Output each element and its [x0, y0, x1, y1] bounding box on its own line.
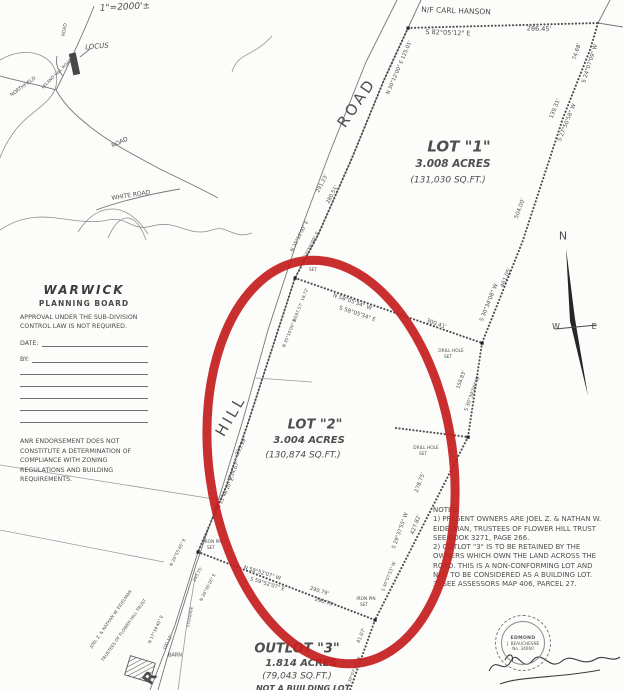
dist-north-line: 286.45' [527, 25, 552, 32]
dist-east-1: 504.00' [515, 198, 527, 219]
dist-ne-1: 74.68' [573, 43, 584, 61]
bearing-outlot-1: N 20°55'45" E [170, 538, 188, 567]
bearing-outlot-3: N 17°34'40" E [149, 615, 166, 644]
drill-hole-2-label: DRILL HOLE [413, 447, 438, 451]
by-blank-line [32, 355, 148, 363]
note-line: OWNERS WHICH OWN THE LAND ACROSS THE [433, 552, 623, 561]
road-name: ROAD [335, 76, 379, 131]
planning-board-date-row: DATE: [20, 339, 148, 347]
dist-wall-1: 291.23' [316, 174, 330, 194]
barn-label: BARN [168, 654, 182, 659]
bearing-wall-2: N 33°59'00" E [302, 232, 322, 264]
iron-pin-2-set: SET [207, 547, 215, 551]
dist-road-4: 255.99' [236, 437, 249, 457]
abutter-north: N/F CARL HANSON [421, 6, 491, 16]
planning-board-title: WARWICK [20, 283, 148, 297]
bearing-ne-2: S 27°50'58" W [558, 103, 578, 142]
planning-board-approval-text: APPROVAL UNDER THE SUB-DIVISION CONTROL … [20, 313, 148, 331]
note-line: 1) PRESENT OWNERS ARE JOEL Z. & NATHAN W… [433, 515, 623, 524]
seal-number: No. 34660 [512, 646, 534, 651]
compass-e: E [591, 323, 596, 331]
outlot3-title: OUTLOT "3" [254, 643, 339, 656]
note-line: ROAD. THIS IS A NON-CONFORMING LOT AND [433, 562, 623, 571]
scale-note: 1"=2000'± [100, 2, 151, 14]
lot2-sqft: (130,874 SQ.FT.) [265, 452, 340, 461]
dist-div: 300.41' [425, 319, 446, 331]
locus-road-mid: ROAD [111, 136, 129, 149]
note-line: NOTES: [433, 506, 623, 515]
iron-pin-1-label: IRON PIN [306, 263, 325, 267]
bearing-se-2: S 30°07'53" W [382, 562, 398, 593]
dist-bot-1: 290.79' [309, 587, 329, 598]
iron-pin-1-set: SET [309, 269, 317, 273]
locus-northfield: NORTHFIELD [10, 77, 37, 99]
stockade-label: STOCKADE [186, 606, 194, 627]
iron-pin-2-label: IRON PIN [203, 541, 222, 545]
lot2-acres: 3.004 ACRES [273, 436, 345, 446]
dist-outlot-2: 100.12' [164, 635, 175, 652]
bearing-se-1: S 29°37'55" W [392, 512, 410, 549]
dist-se-1: 278.75' [415, 472, 427, 493]
signature-blank-line [20, 363, 148, 375]
planning-board-by-row: BY: [20, 355, 148, 363]
bearing-east-1: S 30°34'08" W [480, 283, 500, 322]
signature-blank-line [20, 387, 148, 399]
dist-bot-2: 290.79' [314, 598, 334, 609]
compass-w: W [552, 323, 560, 331]
signature-blank-line [20, 411, 148, 423]
note-line: NOT TO BE CONSIDERED AS A BUILDING LOT. [433, 571, 623, 580]
dist-se-3: 41.07' [357, 628, 368, 644]
note-line: EIDELMAN, TRUSTEES OF FLOWER HILL TRUST [433, 525, 623, 534]
outlot3-sqft: (79,043 SQ.FT.) [262, 673, 332, 682]
bearing-ne-1: S 24°07'09" W [582, 44, 600, 84]
locus-road-north: ROAD [63, 23, 70, 37]
surveyor-seal: EDMOND J. BEAUCHESNE No. 34660 [495, 615, 551, 671]
dist-ne-2: 139.31' [550, 98, 563, 119]
bearing-road-2: N 35°10'00" W [283, 317, 299, 348]
bearing-road-3: N 33°46'10" E [218, 478, 237, 511]
lot1-acres: 3.008 ACRES [415, 159, 490, 170]
bearing-north-line: S 82°05'12" E [425, 29, 470, 37]
dist-east-3: 158.83' [456, 370, 467, 389]
planning-board-subtitle: PLANNING BOARD [20, 299, 148, 308]
dist-road-2: 18.72' [301, 288, 310, 302]
bearing-east-2: S 30°34'06" W [464, 376, 481, 412]
locus-white-road: WHITE ROAD [111, 190, 151, 202]
bearing-se-3: S 30°07'53" W [347, 657, 363, 688]
notes-block: NOTES:1) PRESENT OWNERS ARE JOEL Z. & NA… [433, 506, 623, 590]
dist-se-2: 427.82' [411, 514, 423, 535]
surveyor-seal-inner: EDMOND J. BEAUCHESNE No. 34660 [501, 621, 545, 665]
survey-plat-scan: 1"=2000'±LOCUSROADLELAND HILL ROADNORTHF… [0, 0, 623, 690]
by-label: BY: [20, 356, 29, 363]
signature-blank-line [20, 399, 148, 411]
compass-n: N [559, 231, 567, 242]
lot2-title: LOT "2" [288, 419, 343, 432]
lot1-title: LOT "1" [427, 140, 490, 155]
road-letter-r: R [140, 668, 160, 687]
dist-wall-2: 280.51' [326, 185, 340, 205]
drill-hole-1-set: SET [444, 356, 452, 360]
anr-endorsement-note: ANR ENDORSEMENT DOES NOT CONSTITUTE A DE… [20, 437, 148, 484]
dist-east-2: 461.05' [501, 267, 514, 288]
locus-leland-hill-road: LELAND HILL ROAD [41, 58, 73, 89]
outlot3-note: NOT A BUILDING LOT [256, 685, 350, 690]
bearing-outlot-2: N 26°36'26" E [200, 573, 218, 602]
date-blank-line [42, 339, 148, 347]
drill-hole-2-set: SET [419, 453, 427, 457]
iron-pin-3-set: SET [360, 604, 368, 608]
drill-hole-1-label: DRILL HOLE [438, 350, 463, 354]
signature-blank-line [20, 375, 148, 387]
locus-label: LOCUS [85, 42, 109, 51]
bearing-road-top: N 30°12'00" E 125.01' [386, 40, 413, 95]
note-line: 3) SEE ASSESSORS MAP 406, PARCEL 27. [433, 580, 623, 589]
lot1-sqft: (131,030 SQ.FT.) [410, 177, 485, 186]
iron-pin-3-label: IRON PIN [356, 598, 375, 602]
dist-outlot-1: 103.75' [193, 567, 204, 583]
planning-board-block: WARWICK PLANNING BOARD APPROVAL UNDER TH… [20, 283, 148, 484]
note-line: 2) OUTLOT "3" IS TO BE RETAINED BY THE [433, 543, 623, 552]
note-line: SEE BOOK 3271, PAGE 266. [433, 534, 623, 543]
owner-line-2: TRUSTEES OF FLOWER HILL TRUST [102, 599, 149, 663]
date-label: DATE: [20, 340, 39, 347]
outlot3-acres: 1.814 ACRES [265, 659, 337, 669]
hill-name: HILL [213, 393, 248, 439]
